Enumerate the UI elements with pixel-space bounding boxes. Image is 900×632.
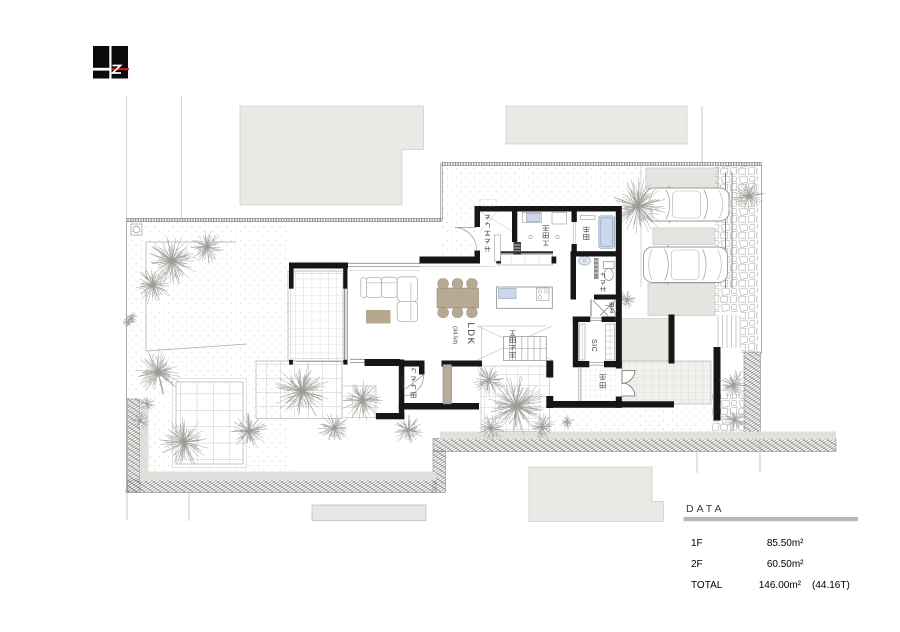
svg-text:LDK: LDK bbox=[465, 323, 476, 346]
svg-text:146.00m²: 146.00m² bbox=[759, 580, 802, 591]
svg-text:TOTAL: TOTAL bbox=[691, 580, 723, 591]
svg-text:DATA: DATA bbox=[686, 503, 724, 515]
svg-text:(44.16T): (44.16T) bbox=[812, 580, 850, 591]
svg-text:(34.5#): (34.5#) bbox=[452, 326, 458, 344]
svg-text:2F: 2F bbox=[691, 559, 703, 570]
svg-text:60.50m²: 60.50m² bbox=[767, 559, 804, 570]
svg-text:SIC: SIC bbox=[590, 339, 597, 352]
svg-text:(2.1#): (2.1#) bbox=[399, 376, 405, 389]
svg-text:85.50m²: 85.50m² bbox=[767, 538, 804, 549]
svg-text:1F: 1F bbox=[691, 538, 703, 549]
